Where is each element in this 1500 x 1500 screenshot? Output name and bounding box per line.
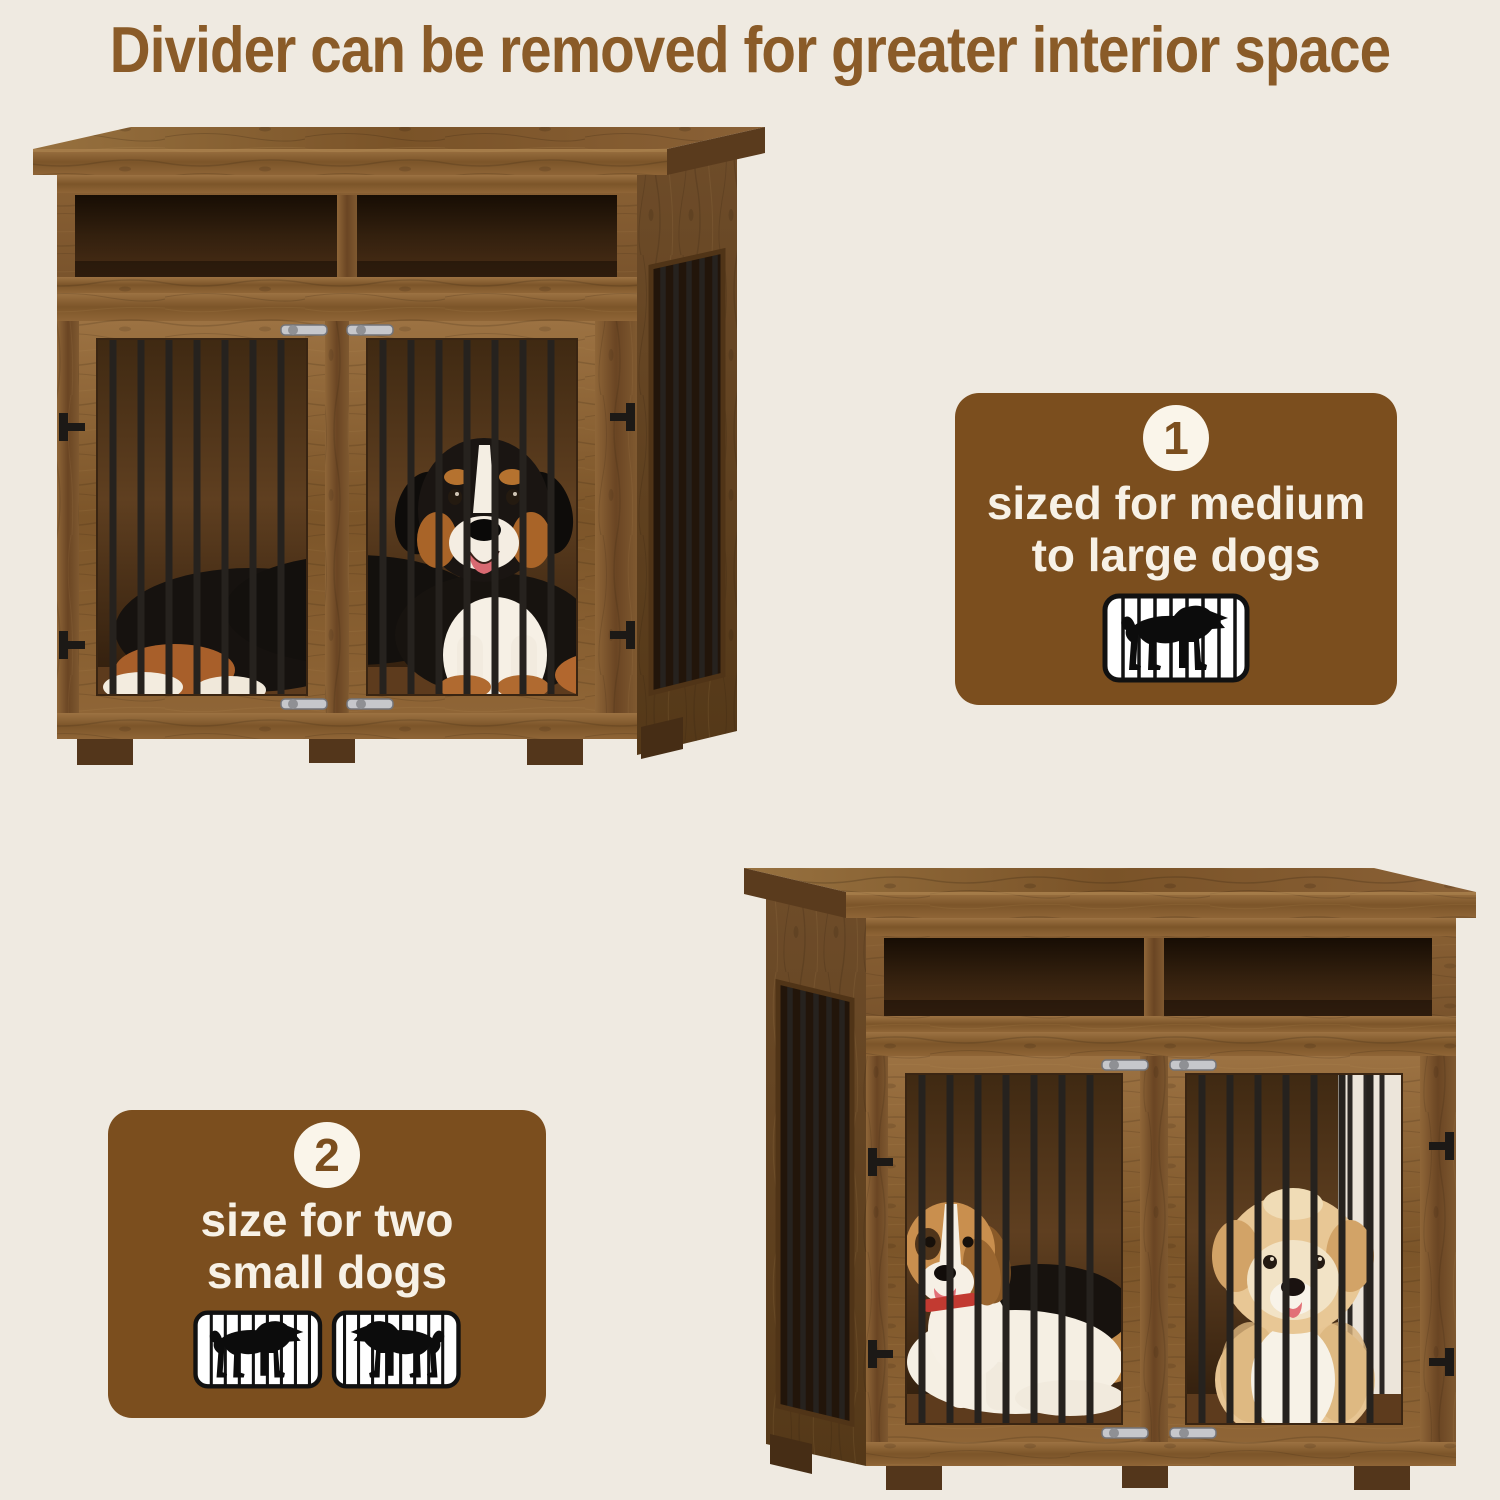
crate-large-tabletop (33, 127, 765, 175)
badge-1-number: 1 (1143, 405, 1209, 471)
feature-badge-1: 1 sized for medium to large dogs (955, 393, 1397, 705)
page-title: Divider can be removed for greater inter… (98, 12, 1403, 87)
crate-two-side-panel (766, 896, 866, 1466)
crate-two-tabletop (744, 868, 1476, 918)
crate-two-storage-shelf (866, 918, 1456, 1056)
crate-two-dogs-illustration (744, 868, 1476, 1490)
badge-2-label: size for two small dogs (200, 1194, 453, 1299)
badge-2-number: 2 (294, 1122, 360, 1188)
two-dogs-in-cages-icon (192, 1309, 462, 1390)
feature-badge-2: 2 size for two small dogs (108, 1110, 546, 1418)
crate-large-side-panel (637, 153, 737, 755)
crate-large-illustration (33, 127, 765, 765)
crate-large-storage-shelf (57, 175, 637, 321)
dog-in-cage-icon (1101, 592, 1251, 684)
badge-1-label: sized for medium to large dogs (987, 477, 1365, 582)
product-infographic: Divider can be removed for greater inter… (0, 0, 1500, 1500)
